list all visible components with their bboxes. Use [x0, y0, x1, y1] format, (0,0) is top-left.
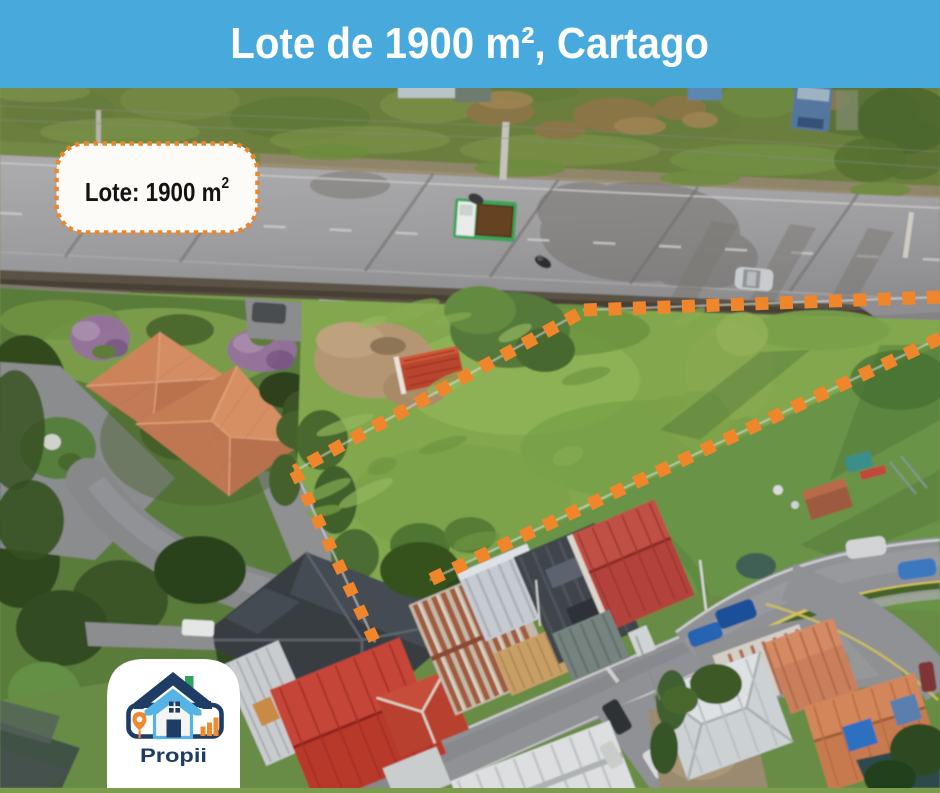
svg-text:Propii: Propii [140, 746, 207, 767]
